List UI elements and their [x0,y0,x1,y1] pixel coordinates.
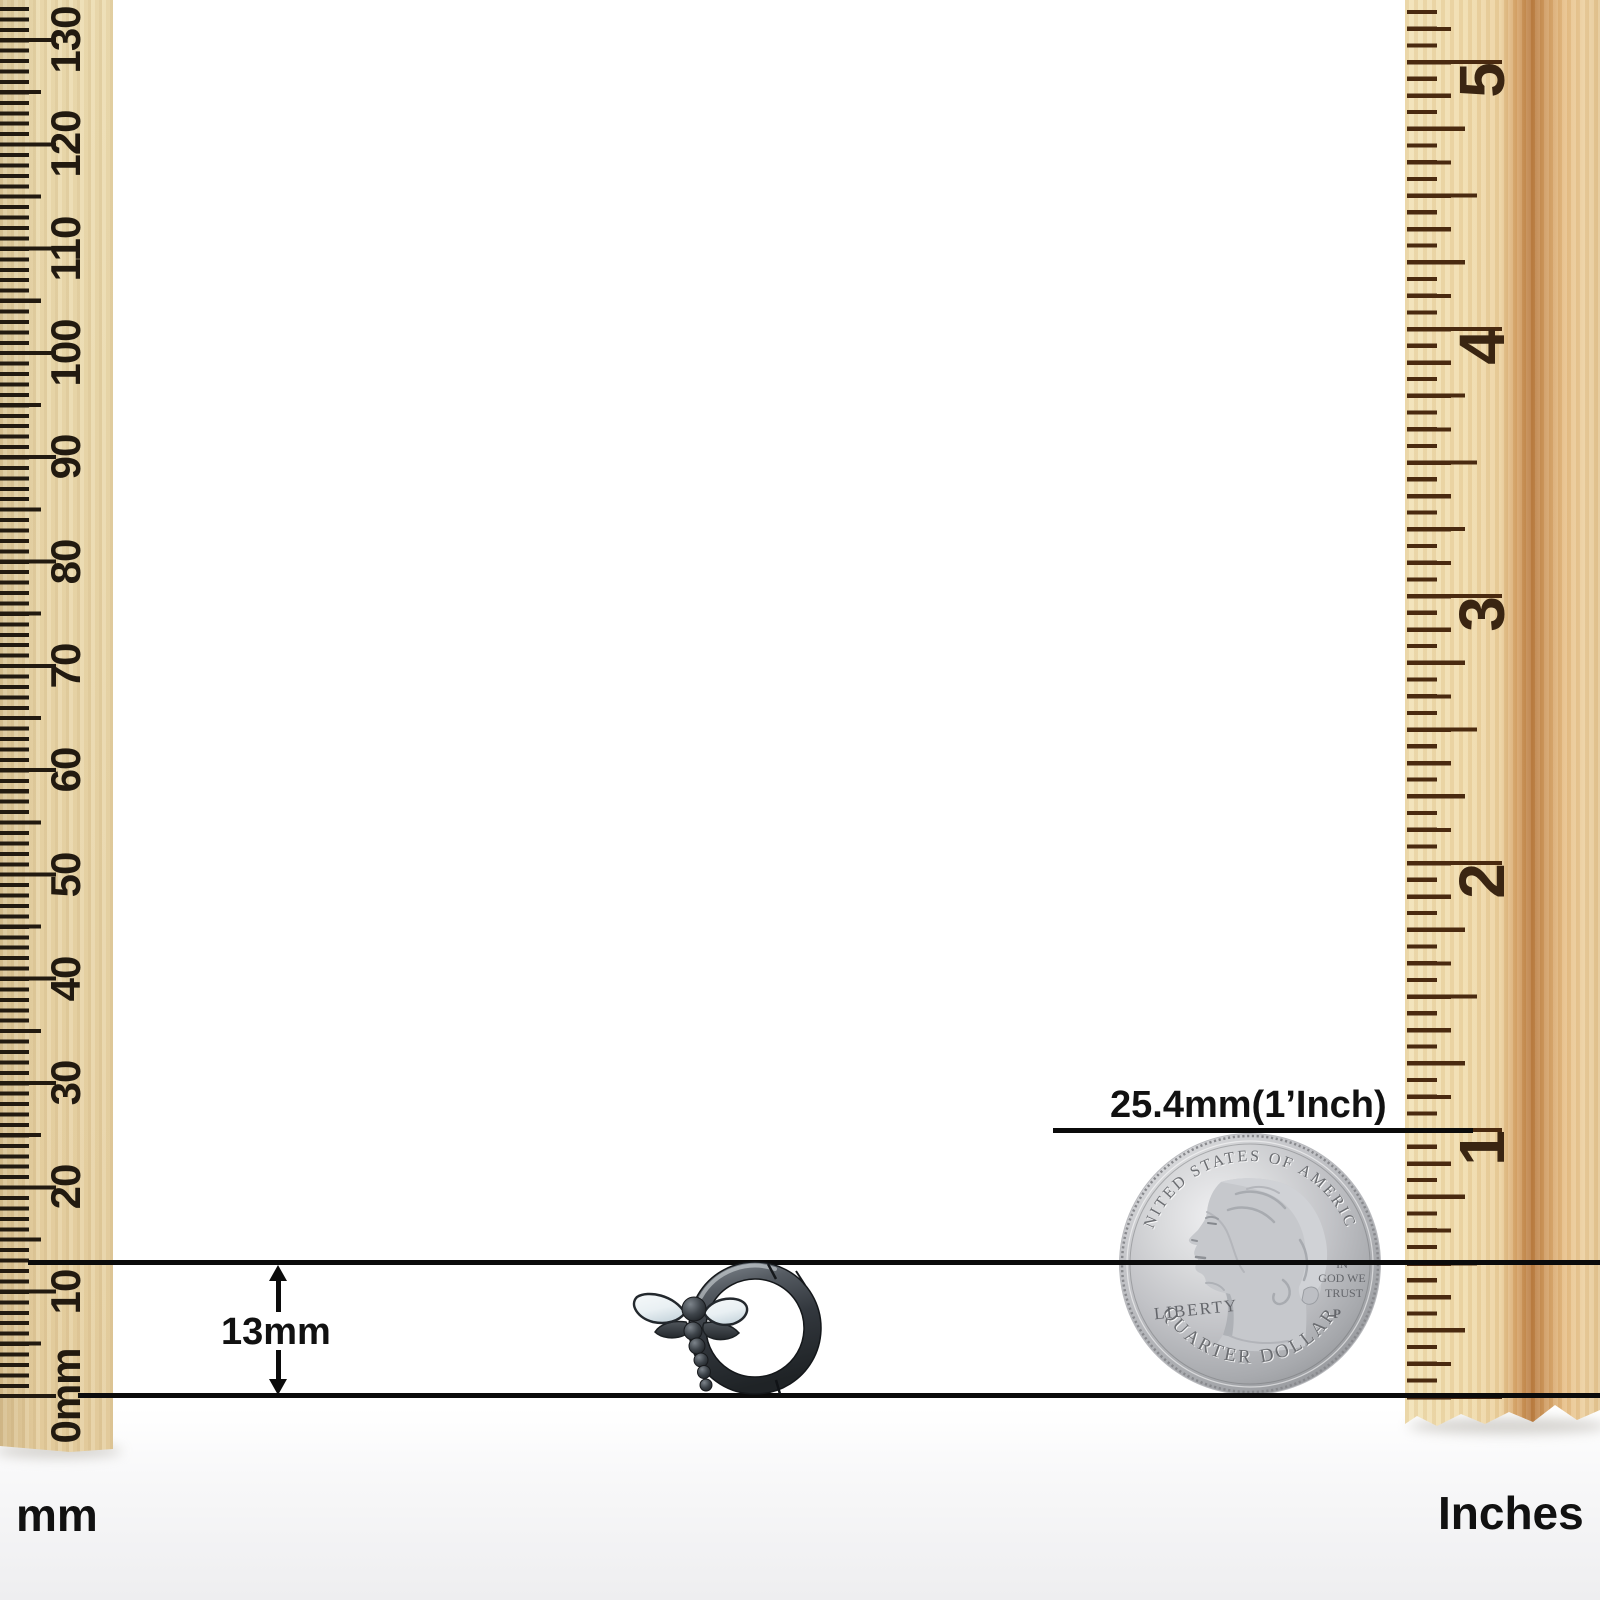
coin-motto-line3: TRUST [1325,1286,1364,1300]
upper-left-wing [634,1294,685,1323]
coin-motto-line2: GOD WE [1318,1271,1365,1285]
mm-ruler-number: 30 [42,1061,90,1106]
coin-mint-mark: P [1333,1306,1341,1321]
arrow-down-icon [269,1379,287,1395]
mm-ruler-number: 60 [42,748,90,793]
body-bead-tail [700,1379,712,1391]
inches-unit-caption: Inches [1438,1486,1584,1540]
inch-ruler-number: 1 [1445,1130,1519,1166]
inch-ruler-number: 3 [1445,596,1519,632]
dragonfly-hoop-earring [600,1235,840,1410]
mm-ruler-number: 50 [42,853,90,898]
mm-ruler-number: 90 [42,435,90,480]
mm-ruler-number: 70 [42,644,90,689]
product-size-guide: 0mm 10 20 30 40 50 60 70 80 90 100 110 1… [0,0,1600,1600]
mm-ruler-number: 20 [42,1165,90,1210]
dragonfly-head [682,1297,706,1321]
item-height-label: 13mm [221,1311,331,1354]
inch-ruler-number: 2 [1445,863,1519,899]
mm-ruler-number: 80 [42,540,90,585]
one-inch-reference-line [1053,1128,1473,1133]
coin-size-label: 25.4mm(1’Inch) [1110,1084,1387,1127]
inch-ruler-number: 5 [1445,62,1519,98]
mm-ruler-number: 100 [42,319,90,386]
mm-ruler-number: 120 [42,110,90,177]
arrow-up-icon [269,1265,287,1281]
mm-ruler-number: 40 [42,957,90,1002]
body-bead [694,1353,708,1367]
mm-unit-caption: mm [16,1488,98,1542]
inch-ruler-number: 4 [1445,329,1519,365]
body-bead [684,1322,702,1340]
arrow-down-shaft [276,1350,281,1380]
arrow-up-shaft [276,1280,281,1312]
mm-ruler-number: 130 [42,6,90,73]
body-bead [689,1338,705,1354]
mm-ruler-number: 10 [42,1270,90,1315]
inch-ruler: 1 2 3 4 5 [1405,0,1600,1435]
mm-ruler-number: 110 [42,217,90,282]
mm-ruler: 0mm 10 20 30 40 50 60 70 80 90 100 110 1… [0,0,115,1452]
body-bead [698,1366,711,1379]
inch-tick-marks [1407,60,1502,1405]
